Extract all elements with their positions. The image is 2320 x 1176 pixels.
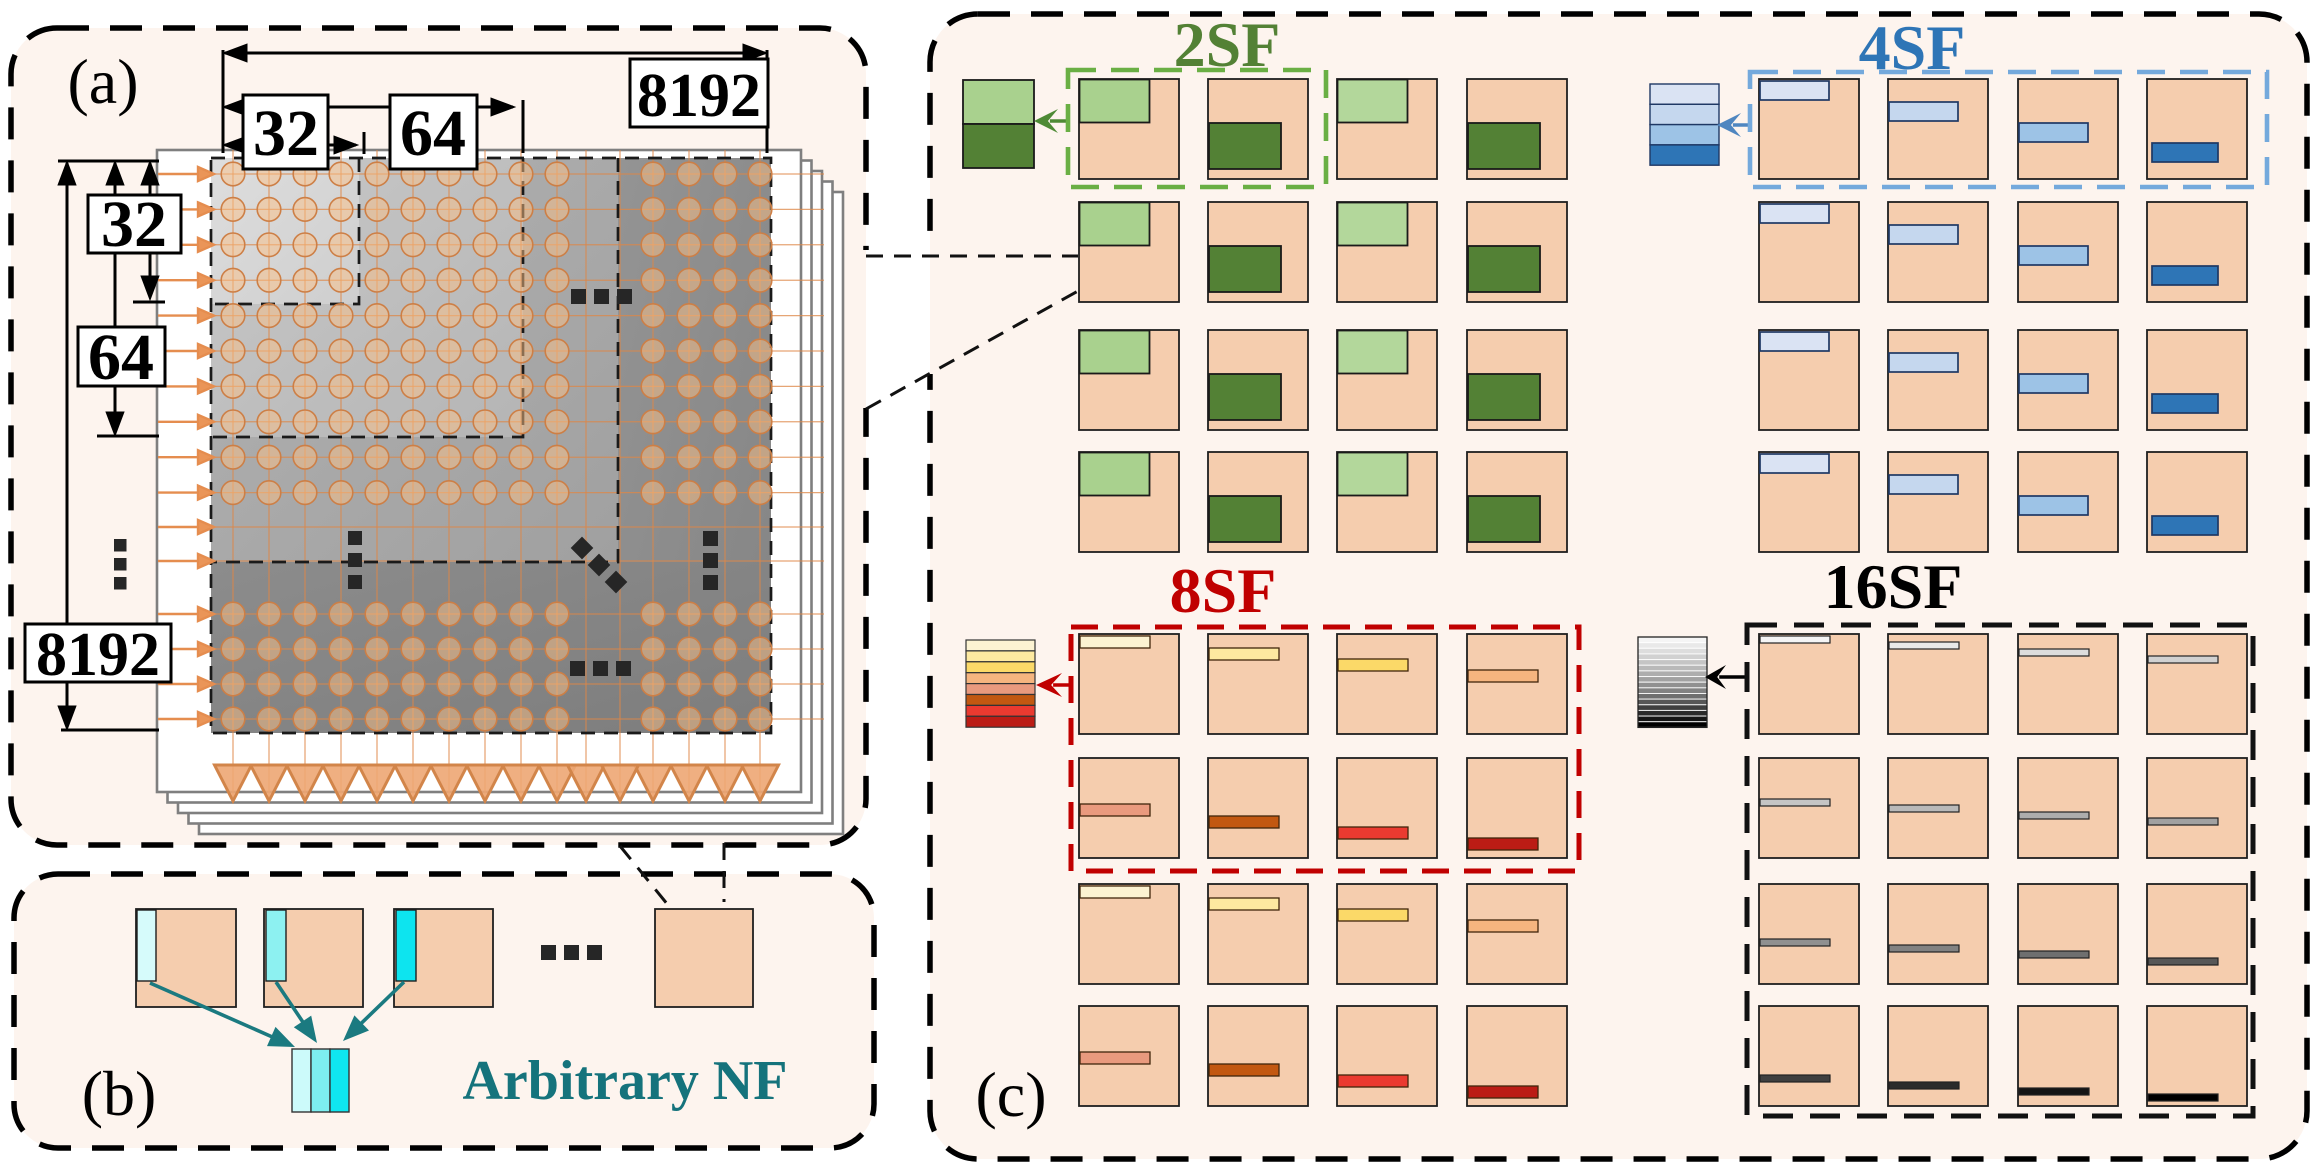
svg-text:8SF: 8SF [1170,555,1277,626]
svg-text:(a): (a) [67,46,138,117]
svg-text:32: 32 [253,97,319,170]
svg-text:64: 64 [88,321,154,394]
svg-text:(c): (c) [975,1059,1046,1130]
svg-text:8192: 8192 [36,621,160,689]
svg-text:16SF: 16SF [1824,551,1963,622]
svg-text:64: 64 [400,97,466,170]
svg-text:Arbitrary NF: Arbitrary NF [462,1050,787,1112]
svg-text:8192: 8192 [637,62,761,130]
svg-text:32: 32 [101,188,167,261]
svg-text:(b): (b) [82,1058,157,1129]
